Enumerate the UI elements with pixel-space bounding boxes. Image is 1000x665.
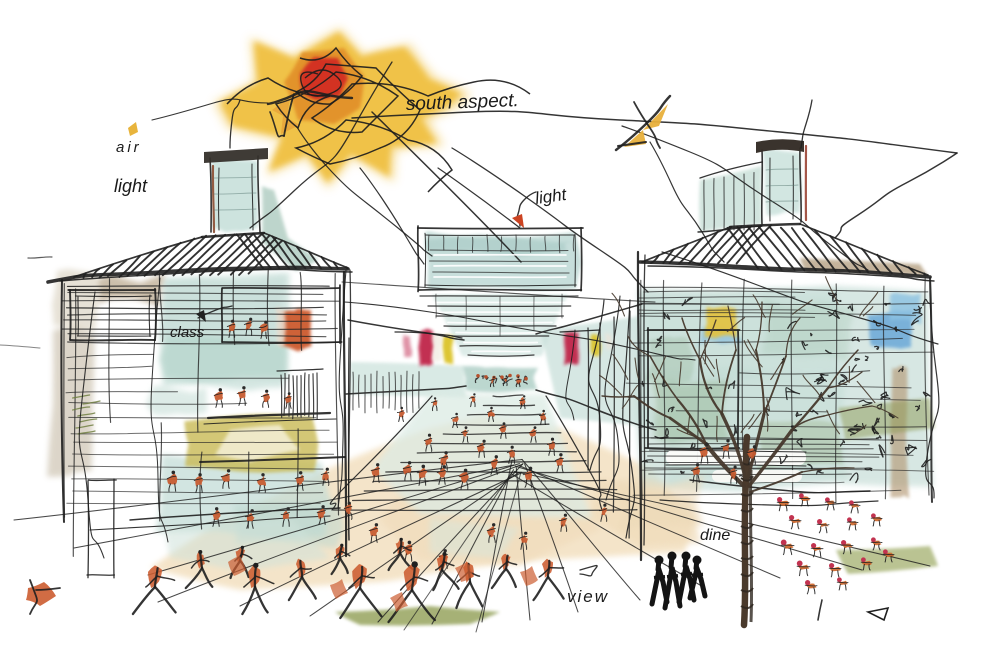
svg-text:light: light — [114, 176, 148, 196]
svg-text:south aspect.: south aspect. — [405, 90, 519, 115]
svg-text:class: class — [170, 324, 205, 341]
svg-text:dine: dine — [700, 527, 730, 544]
svg-text:air: air — [116, 139, 142, 156]
svg-text:view: view — [567, 587, 609, 606]
